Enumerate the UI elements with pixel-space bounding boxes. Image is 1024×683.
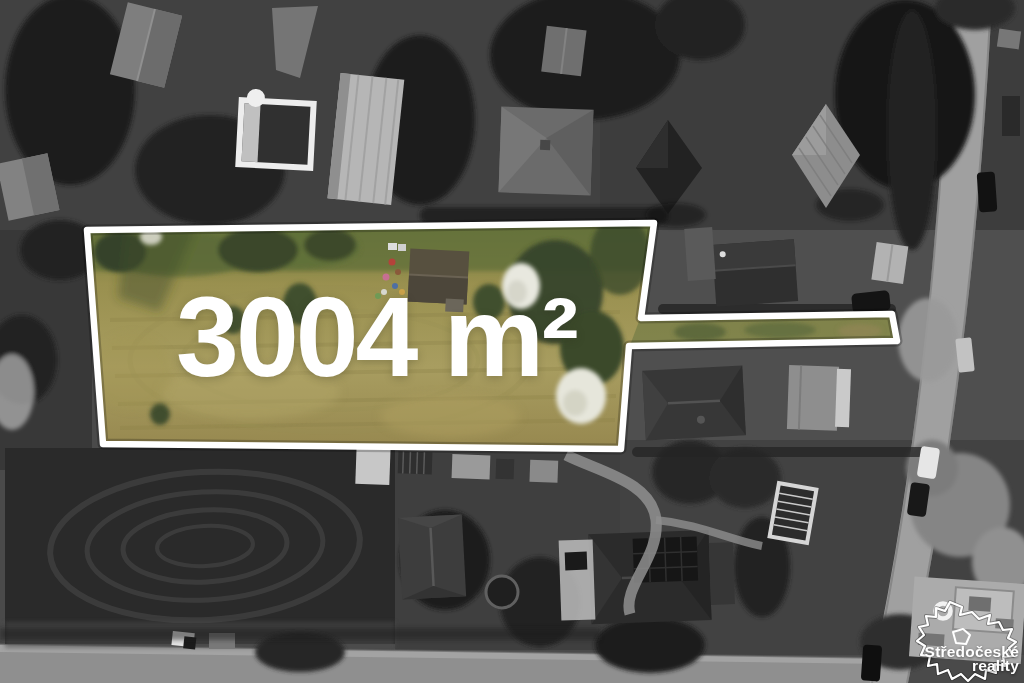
brand-name-line2: reality <box>879 659 1019 673</box>
shed-gray <box>684 227 716 281</box>
brand-logo-text: Středočeské reality <box>879 645 1019 673</box>
house-below-strip <box>642 365 746 440</box>
area-label: 3004 m² <box>150 281 602 401</box>
house-above-strip <box>712 239 798 307</box>
terrace <box>559 539 596 620</box>
barn-roof <box>327 73 404 205</box>
shed-light <box>871 242 908 284</box>
shed-topcenter <box>541 26 586 77</box>
house-cross-hip <box>498 106 593 195</box>
round-pool <box>486 576 518 608</box>
garage-below-strip <box>787 365 851 431</box>
plowed-field <box>5 448 395 649</box>
house-hip-left <box>398 514 466 599</box>
aerial-photo: 3004 m² Středočeské reality <box>0 0 1024 683</box>
